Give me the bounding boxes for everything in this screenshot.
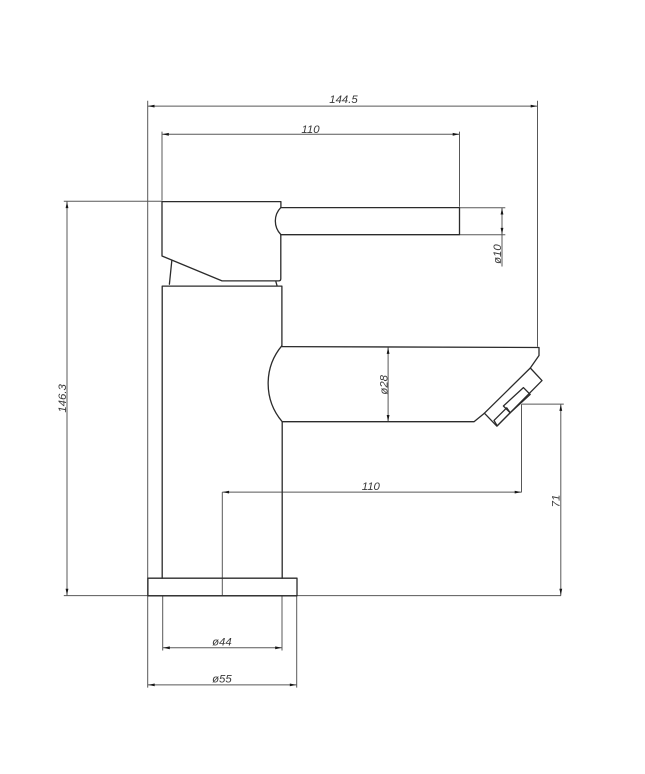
- svg-text:146.3: 146.3: [57, 383, 69, 412]
- svg-text:110: 110: [301, 124, 320, 136]
- svg-text:71: 71: [550, 495, 562, 508]
- svg-text:ø44: ø44: [212, 637, 232, 649]
- svg-text:ø55: ø55: [212, 673, 232, 685]
- svg-text:144.5: 144.5: [329, 94, 358, 106]
- svg-text:ø28: ø28: [378, 374, 390, 394]
- svg-text:110: 110: [362, 481, 381, 493]
- svg-text:ø10: ø10: [492, 244, 504, 264]
